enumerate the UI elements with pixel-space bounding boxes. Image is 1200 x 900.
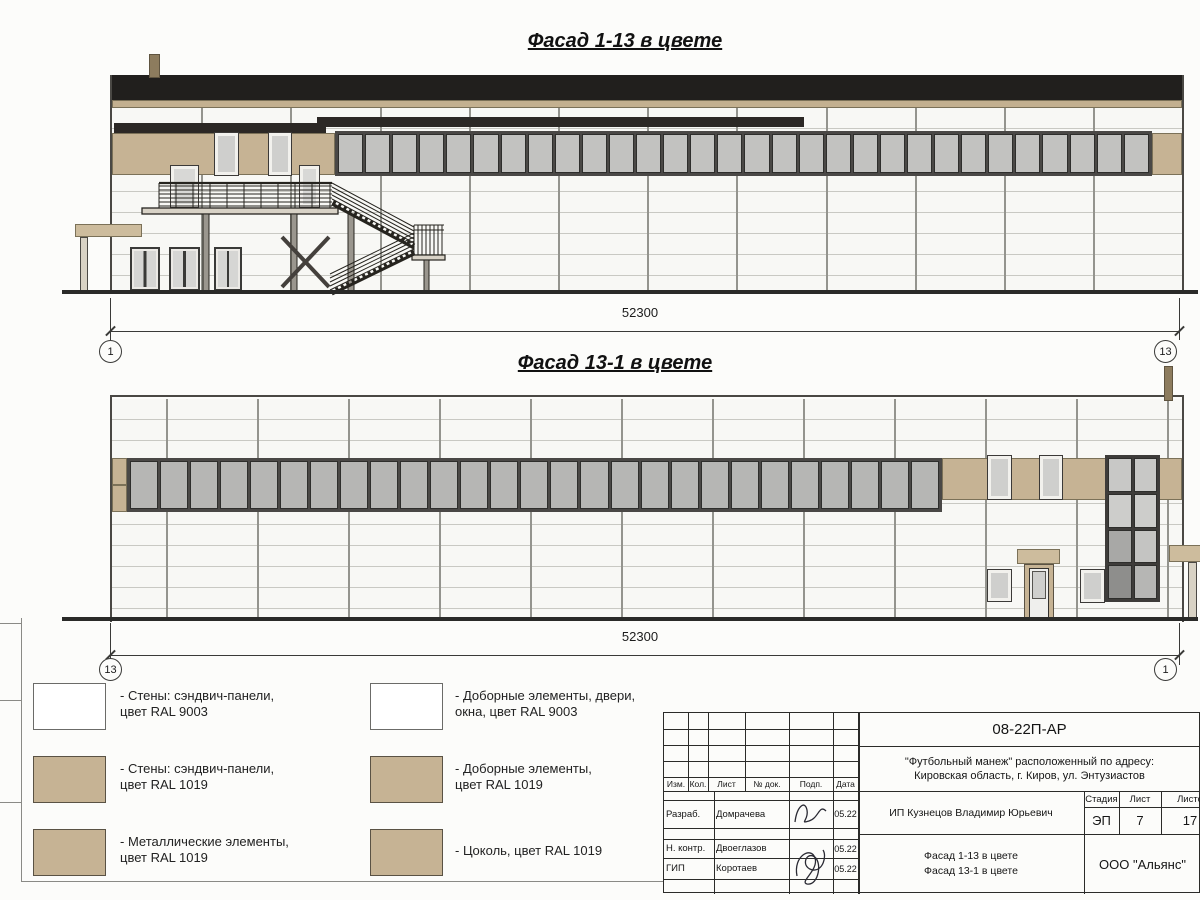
legend-swatch xyxy=(33,683,106,730)
facade-13-1-drawing xyxy=(110,395,1184,622)
col-doc: № док. xyxy=(745,777,789,791)
glazing-pane xyxy=(1108,494,1132,528)
roof-pipe xyxy=(1164,366,1173,401)
facade-1-13-drawing xyxy=(110,75,1184,293)
axis-bubble-1: 1 xyxy=(1154,658,1177,681)
glazing-pane xyxy=(1108,530,1132,564)
facade2-title: Фасад 13-1 в цвете xyxy=(390,352,840,375)
legend-label: - Стены: сэндвич-панели, цвет RAL 1019 xyxy=(120,761,350,793)
frame-left-line xyxy=(21,618,22,882)
col-izm: Изм. xyxy=(664,777,688,791)
legend-label: - Доборные элементы, цвет RAL 1019 xyxy=(455,761,685,793)
window xyxy=(987,455,1012,500)
doc-code: 08-22П-АР xyxy=(858,713,1200,746)
row-role: ГИП xyxy=(666,858,714,879)
legend-swatch xyxy=(370,683,443,730)
frame-tick xyxy=(0,623,21,624)
row-role: Разраб. xyxy=(666,800,714,828)
col-list: Лист xyxy=(708,777,745,791)
row-role: Н. контр. xyxy=(666,839,714,858)
legend-swatch xyxy=(33,756,106,803)
legend-label: - Металлические элементы, цвет RAL 1019 xyxy=(120,834,350,866)
row-name: Коротаев xyxy=(716,858,787,879)
project-address: "Футбольный манеж" расположенный по адре… xyxy=(860,746,1199,791)
legend-swatch xyxy=(370,756,443,803)
side-canopy xyxy=(1169,545,1200,562)
glazing-pane xyxy=(1134,530,1158,564)
axis-bubble-1: 1 xyxy=(99,340,122,363)
canopy-post xyxy=(1188,562,1197,620)
entrance-door xyxy=(1024,564,1054,619)
legend-swatch xyxy=(370,829,443,876)
row-name: Домрачева xyxy=(716,800,787,828)
drawing-sheet: Фасад 1-13 в цвете xyxy=(0,0,1200,900)
sheets-total-label: Листов xyxy=(1161,791,1200,807)
dim-value: 52300 xyxy=(540,305,740,320)
entrance-canopy xyxy=(75,224,142,237)
stage-value: ЭП xyxy=(1084,807,1119,834)
window xyxy=(1080,569,1105,603)
glazing-pane xyxy=(1134,458,1158,492)
row-date: 05.22 xyxy=(833,839,858,858)
axis-bubble-13: 13 xyxy=(99,658,122,681)
row-date: 05.22 xyxy=(833,800,858,828)
col-data: Дата xyxy=(833,777,858,791)
sheet-title: Фасад 1-13 в цвете Фасад 13-1 в цвете xyxy=(860,834,1082,894)
sheets-total-value: 17 xyxy=(1161,807,1200,834)
legend-label: - Цоколь, цвет RAL 1019 xyxy=(455,843,685,859)
col-kol: Кол. xyxy=(688,777,708,791)
canopy-post xyxy=(80,237,88,292)
company-name: ООО "Альянс" xyxy=(1084,834,1200,894)
sheet-label: Лист xyxy=(1119,791,1161,807)
tall-glazing xyxy=(1105,455,1160,602)
door-canopy xyxy=(1017,549,1060,564)
frame-tick xyxy=(0,700,21,701)
stage-label: Стадия xyxy=(1084,791,1119,807)
ground-line xyxy=(62,290,1198,294)
facade1-title: Фасад 1-13 в цвете xyxy=(400,30,850,53)
signature-strokes xyxy=(789,798,833,894)
window xyxy=(987,569,1012,602)
axis-bubble-13: 13 xyxy=(1154,340,1177,363)
dim-value: 52300 xyxy=(540,629,740,644)
title-block: Изм. Кол. Лист № док. Подп. Дата Разраб.… xyxy=(663,712,1200,893)
legend-label: - Стены: сэндвич-панели, цвет RAL 9003 xyxy=(120,688,350,720)
glazing-pane xyxy=(1108,458,1132,492)
sheet-value: 7 xyxy=(1119,807,1161,834)
window xyxy=(1039,455,1063,500)
glazing-pane xyxy=(1134,494,1158,528)
legend-swatch xyxy=(33,829,106,876)
facade2-openings xyxy=(112,397,1182,622)
col-podp: Подп. xyxy=(789,777,833,791)
row-date: 05.22 xyxy=(833,858,858,879)
row-name: Двоеглазов xyxy=(716,839,787,858)
frame-tick xyxy=(0,802,21,803)
glazing-pane xyxy=(1134,565,1158,599)
frame-bottom-line xyxy=(21,881,663,882)
external-stair-assembly xyxy=(112,75,1182,293)
ground-line xyxy=(62,617,1198,621)
glazing-pane xyxy=(1108,565,1132,599)
client-name: ИП Кузнецов Владимир Юрьевич xyxy=(860,791,1082,834)
legend-label: - Доборные элементы, двери, окна, цвет R… xyxy=(455,688,685,720)
